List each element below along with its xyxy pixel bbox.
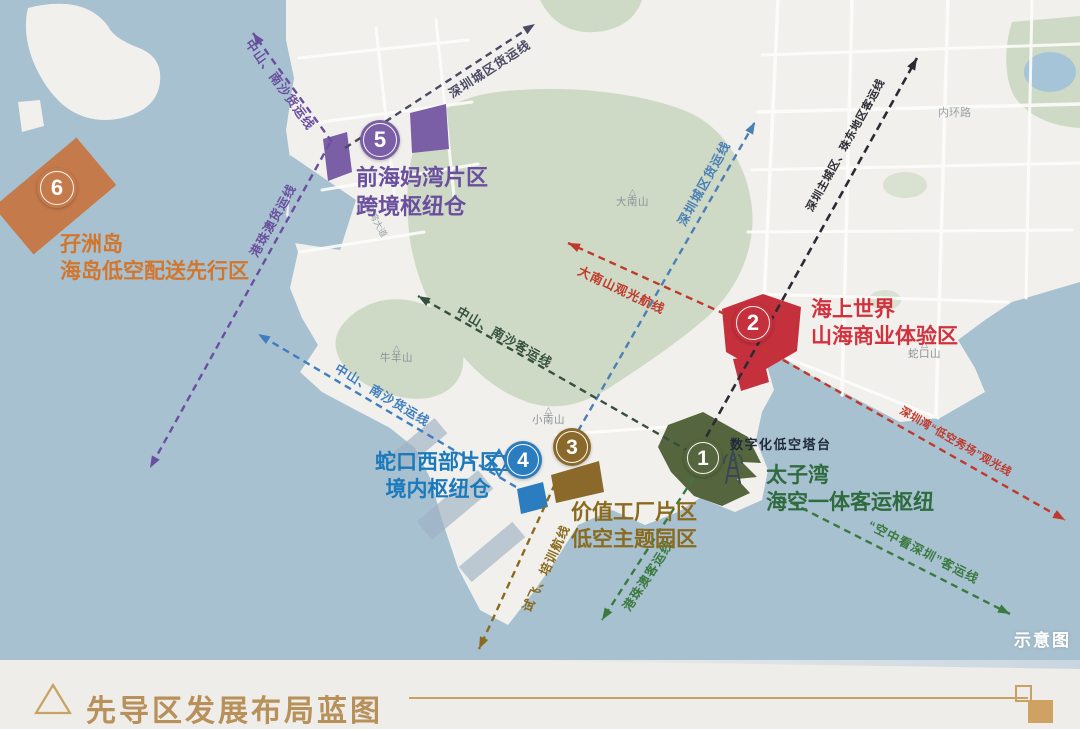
marker-1: 1 — [684, 439, 722, 477]
zone-subtitle: 海岛低空配送先行区 — [60, 258, 249, 285]
marker-5: 5 — [360, 120, 400, 160]
park-patch-1 — [883, 172, 927, 198]
zone-3-label: 价值工厂片区 低空主题园区 — [571, 499, 697, 553]
marker-number: 1 — [697, 448, 709, 469]
zone-subtitle: 山海商业体验区 — [811, 323, 958, 350]
map-area: △ 大南山 △ 小南山 △ 牛羊山 △ 蛇口山 内环路 月亮湾大道 中山、南沙货… — [0, 0, 1080, 660]
place-danan-shan: △ 大南山 — [616, 188, 649, 208]
road-label-neihuan: 内环路 — [938, 104, 971, 120]
zone-subtitle: 跨境枢纽仓 — [356, 192, 488, 221]
footer-edge-wedge — [497, 660, 1080, 669]
marker-6: 6 — [37, 168, 77, 208]
triangle-icon — [33, 682, 73, 716]
marker-2: 2 — [733, 303, 773, 343]
deco-square-fill — [1028, 700, 1053, 723]
triangle-outline — [36, 685, 70, 713]
zone-5-label: 前海妈湾片区 跨境枢纽仓 — [356, 163, 488, 221]
zone-subtitle: 低空主题园区 — [571, 526, 697, 553]
marker-number: 4 — [517, 450, 529, 471]
zone-name: 孖洲岛 — [60, 231, 249, 258]
zone-name: 前海妈湾片区 — [356, 163, 488, 192]
marker-number: 5 — [374, 129, 386, 151]
marker-number: 2 — [747, 312, 759, 334]
zone-4-label: 蛇口西部片区 境内枢纽仓 — [362, 449, 514, 503]
zone-subtitle: 境内枢纽仓 — [362, 476, 514, 503]
zone-2-label: 海上世界 山海商业体验区 — [811, 296, 958, 350]
place-niuyang-shan: △ 牛羊山 — [380, 344, 413, 364]
place-name: 蛇口山 — [908, 349, 941, 360]
place-name: 大南山 — [616, 197, 649, 208]
marker-4: 4 — [504, 441, 542, 479]
zone-name: 海上世界 — [811, 296, 958, 323]
zone-subtitle: 海空一体客运枢纽 — [766, 489, 934, 516]
marker-number: 3 — [566, 437, 578, 458]
zone-1-label: 太子湾 海空一体客运枢纽 — [766, 462, 934, 516]
road-line — [748, 230, 1072, 232]
digital-tower-label: 数字化低空塔台 — [730, 434, 832, 453]
place-xiaonan-shan: △ 小南山 — [532, 406, 565, 426]
page-title: 先导区发展布局蓝图 — [86, 686, 383, 729]
marker-number: 6 — [51, 177, 63, 199]
title-rule-line — [409, 697, 1028, 699]
place-name: 牛羊山 — [380, 353, 413, 364]
footer-bar: 先导区发展布局蓝图 — [0, 660, 1080, 729]
place-name: 小南山 — [532, 415, 565, 426]
zone-name: 价值工厂片区 — [571, 499, 697, 526]
schematic-watermark: 示意图 — [1014, 626, 1071, 651]
zone-name: 太子湾 — [766, 462, 934, 489]
marker-3: 3 — [553, 428, 591, 466]
zone-name: 蛇口西部片区 — [362, 449, 514, 476]
zone-6-label: 孖洲岛 海岛低空配送先行区 — [60, 231, 249, 285]
blueprint-slide: △ 大南山 △ 小南山 △ 牛羊山 △ 蛇口山 内环路 月亮湾大道 中山、南沙货… — [0, 0, 1080, 729]
